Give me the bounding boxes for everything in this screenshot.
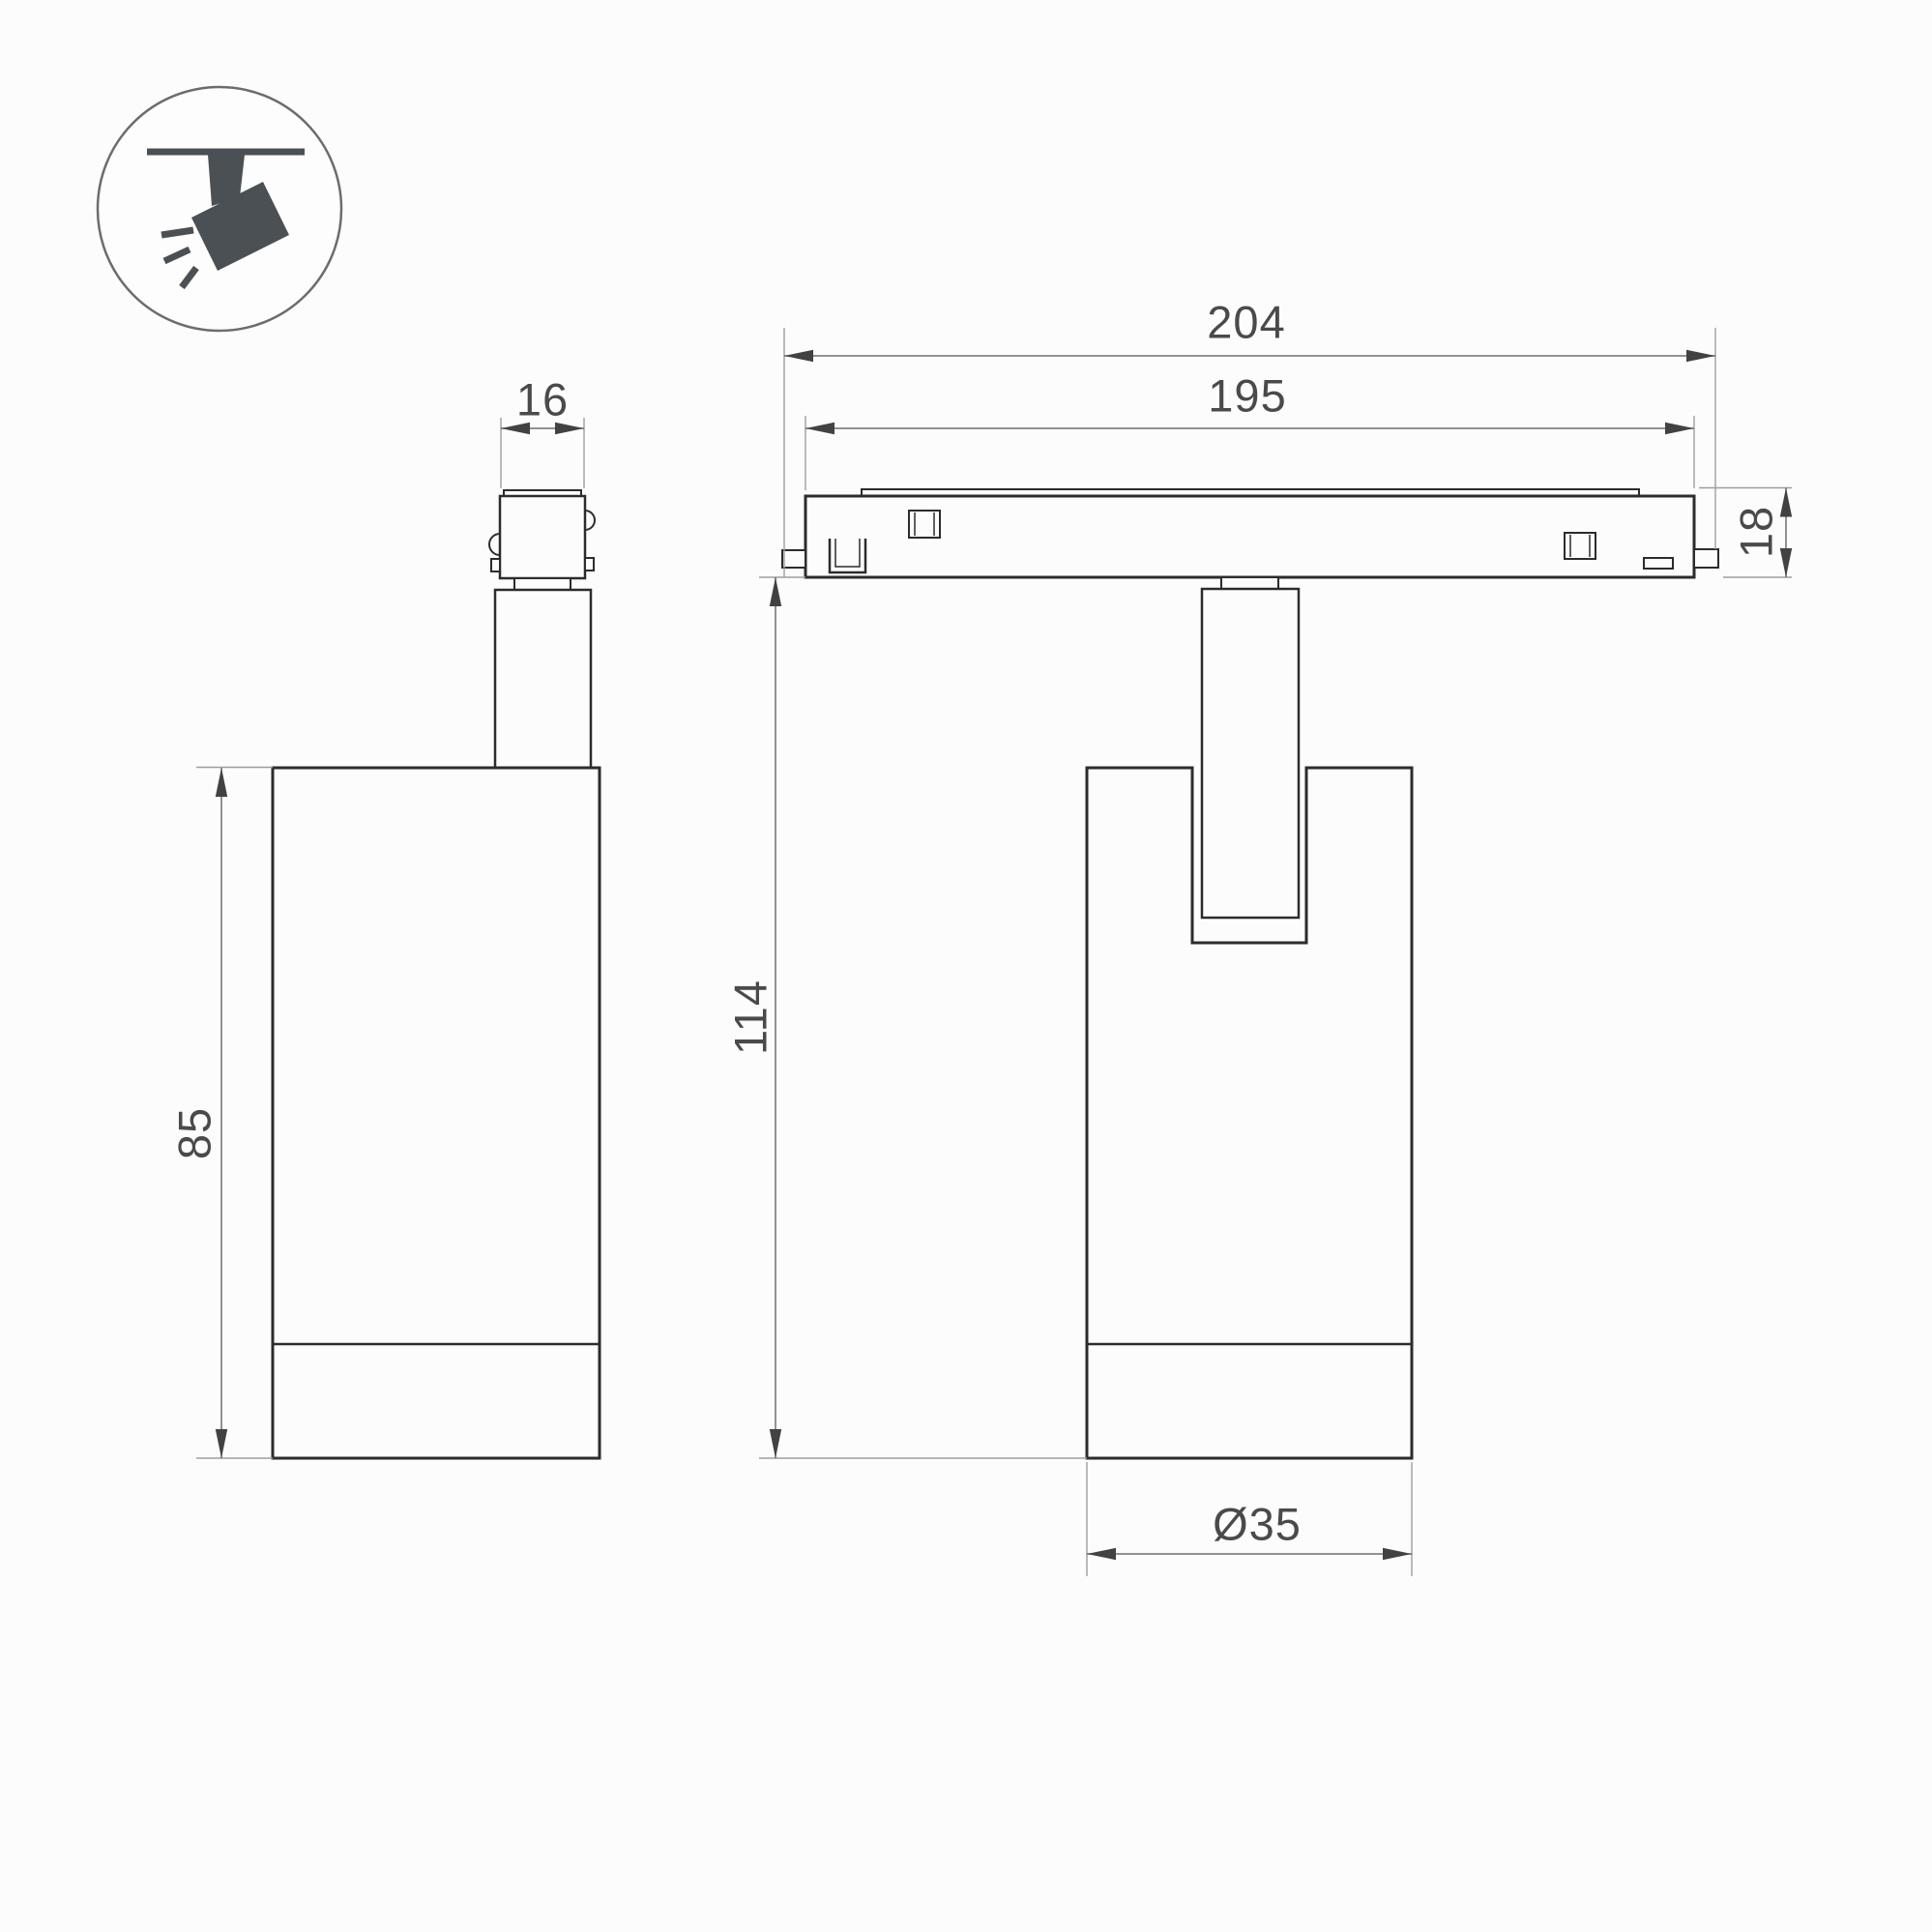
side-view-stem [495, 590, 591, 768]
side-view-track-adapter [500, 496, 585, 578]
dim-label-overall-height: 114 [728, 980, 774, 1055]
dim-label-track-overall-length: 204 [1207, 300, 1285, 345]
technical-drawing [0, 0, 1932, 1932]
side-view-adapter-left-clip-arc [489, 534, 500, 555]
side-view [273, 490, 600, 1458]
dim-label-track-height: 18 [1734, 506, 1779, 558]
side-view-body [273, 768, 600, 1458]
front-view-track-left-clip [909, 511, 940, 538]
dim-label-adapter-width: 16 [516, 377, 569, 423]
side-view-adapter-right-clip-arc [585, 511, 595, 530]
front-view-stem [1202, 589, 1299, 918]
side-view-neck [514, 578, 571, 590]
dim-label-body-diameter: Ø35 [1213, 1502, 1302, 1547]
front-view-track-right-clip [1565, 533, 1595, 559]
front-view [782, 489, 1718, 1458]
drawing-canvas: 16 204 195 18 85 114 Ø35 [0, 0, 1932, 1932]
icon-ray-top [161, 230, 193, 235]
side-view-adapter-right-tab [585, 558, 594, 571]
front-view-track-right-nub [1694, 549, 1718, 568]
front-view-track-left-nub [782, 550, 805, 568]
dim-label-body-height: 85 [172, 1107, 218, 1159]
mounting-icon [98, 87, 341, 331]
dim-label-track-body-length: 195 [1208, 373, 1286, 419]
side-view-adapter-left-tab [491, 559, 500, 571]
front-view-connector-tab [1221, 577, 1278, 589]
front-view-track-slot [1644, 558, 1673, 569]
